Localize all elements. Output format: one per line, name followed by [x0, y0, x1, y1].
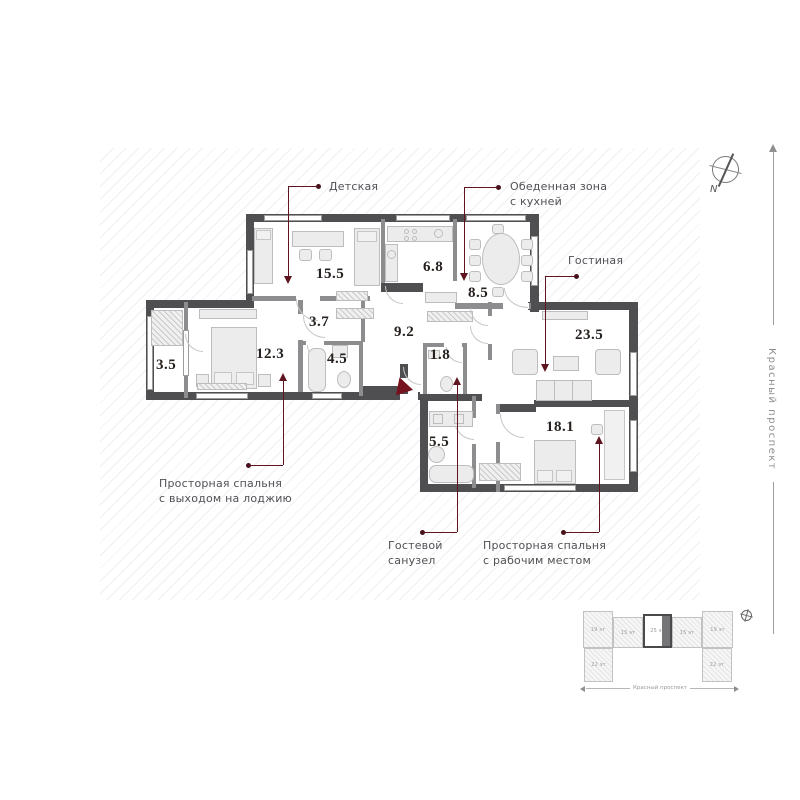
area-label-corridor: 9.2 [394, 324, 414, 341]
chair-icon [521, 271, 533, 282]
wardrobe-icon [199, 309, 257, 319]
stove-burner-icon [404, 229, 409, 234]
closet-icon [427, 311, 473, 322]
armchair-icon [512, 349, 538, 375]
callout-line [249, 465, 283, 466]
chair-icon [469, 255, 481, 266]
callout-bedroom1-label: Просторная спальня с выходом на лоджию [159, 476, 292, 506]
callout-line [464, 187, 496, 188]
callout-line [283, 380, 284, 465]
sink-icon [433, 414, 443, 424]
dresser-icon [336, 291, 368, 301]
area-label-bedroom-2: 18.1 [546, 419, 574, 436]
wall [423, 343, 427, 394]
site-street-arrow-right-icon [734, 686, 739, 692]
callout-line [545, 276, 546, 364]
callout-bedroom1-line1: Просторная спальня [159, 476, 292, 491]
area-label-nursery: 15.5 [316, 266, 344, 283]
area-label-bedroom-1: 12.3 [256, 346, 284, 363]
pillow-icon [357, 231, 377, 242]
callout-line [288, 186, 316, 187]
window [312, 393, 342, 399]
dining-table-icon [482, 233, 520, 285]
wall [534, 400, 629, 407]
wall [361, 300, 365, 342]
nightstand-icon [258, 374, 271, 387]
site-street-arrow-left-icon [580, 686, 585, 692]
site-block-3-strip [662, 616, 670, 646]
site-block-4: 15 эт [672, 617, 702, 648]
area-label-living: 23.5 [575, 327, 603, 344]
stove-burner-icon [412, 229, 417, 234]
street-line [773, 151, 774, 325]
wardrobe-icon [479, 463, 521, 481]
wall [146, 300, 254, 308]
callout-dot [496, 185, 501, 190]
chair-icon [492, 287, 504, 297]
site-compass-icon [740, 609, 754, 623]
callout-arrow-icon [279, 373, 287, 381]
callout-dot [316, 184, 321, 189]
sofa-cushion-icon [572, 381, 574, 400]
callout-arrow-icon [453, 377, 461, 385]
armchair-icon [595, 349, 621, 375]
callout-line [288, 186, 289, 276]
area-label-loggia: 3.5 [156, 357, 176, 374]
sofa-icon [536, 380, 592, 401]
site-block-3-highlighted: 25 эт [643, 614, 672, 648]
callout-arrow-icon [541, 364, 549, 372]
site-block-6: 22 эт [584, 648, 613, 682]
area-label-kitchen: 6.8 [423, 259, 443, 276]
window [630, 352, 637, 396]
callout-line [464, 187, 465, 273]
chair-icon [469, 239, 481, 250]
toilet-icon [337, 371, 351, 388]
wall [528, 302, 632, 310]
site-block-1: 19 эт [583, 611, 613, 648]
site-street-label: Красный проспект [632, 685, 688, 691]
sink-icon [434, 229, 443, 238]
site-block-5: 19 эт [702, 611, 733, 648]
pillow-icon [256, 230, 271, 240]
coffee-table-icon [553, 356, 579, 371]
pillow-icon [537, 470, 553, 482]
chair-icon [299, 249, 312, 261]
callout-dot [574, 274, 579, 279]
loggia-wardrobe-icon [151, 310, 183, 346]
chair-icon [492, 224, 504, 234]
area-label-hall: 3.7 [309, 314, 329, 331]
sink-icon [454, 414, 464, 424]
callout-arrow-icon [460, 273, 468, 281]
callout-line [564, 532, 599, 533]
window [247, 250, 253, 294]
wall [420, 394, 428, 488]
wall [359, 341, 363, 396]
callout-line [599, 443, 600, 532]
site-block-7: 22 эт [702, 648, 732, 682]
street-label-vertical: Красный проспект [766, 348, 777, 470]
window [264, 215, 322, 221]
desk-icon [292, 231, 344, 247]
stove-burner-icon [404, 236, 409, 241]
wall [488, 344, 492, 360]
street-line [773, 482, 774, 634]
wall [453, 219, 457, 281]
window [630, 420, 637, 472]
callout-bedroom2-label: Просторная спальня с рабочим местом [483, 538, 606, 568]
callout-guest-line2: санузел [388, 553, 443, 568]
wall [463, 343, 467, 394]
tv-console-icon [542, 311, 588, 320]
window [466, 215, 526, 221]
window [396, 215, 450, 221]
chair-icon [521, 239, 533, 250]
area-label-guest-bath: 5.5 [429, 434, 449, 451]
work-desk-icon [604, 410, 625, 480]
bathtub-icon [429, 465, 474, 483]
site-block-2: 15 эт [613, 617, 643, 648]
wall [488, 302, 492, 316]
chair-icon [319, 249, 332, 261]
site-street-line [586, 688, 630, 689]
kitchen-counter-icon [387, 226, 453, 242]
chair-icon [469, 271, 481, 282]
callout-bedroom1-line2: с выходом на лоджию [159, 491, 292, 506]
callout-nursery-label: Детская [329, 179, 378, 194]
callout-arrow-icon [284, 276, 292, 284]
callout-bedroom2-line1: Просторная спальня [483, 538, 606, 553]
callout-arrow-icon [595, 436, 603, 444]
callout-living-label: Гостиная [568, 253, 623, 268]
wall [496, 404, 536, 412]
callout-dining-label: Обеденная зона с кухней [510, 179, 607, 209]
callout-bedroom2-line2: с рабочим местом [483, 553, 606, 568]
compass-north-label: N [710, 184, 717, 195]
washing-machine-icon [425, 292, 457, 303]
radiator-icon [197, 383, 247, 390]
window [504, 485, 576, 491]
sink-icon [387, 250, 396, 259]
callout-guest-label: Гостевой санузел [388, 538, 443, 568]
chair-icon [521, 255, 533, 266]
callout-line [423, 532, 457, 533]
stove-burner-icon [412, 236, 417, 241]
pillow-icon [556, 470, 572, 482]
area-label-bathroom: 4.5 [327, 351, 347, 368]
area-label-wc: 1.8 [430, 347, 450, 364]
floorplan-page: 15.5 6.8 8.5 3.7 9.2 4.5 12.3 3.5 1.8 23… [0, 0, 800, 800]
chair-icon [591, 424, 603, 435]
site-street-line [690, 688, 734, 689]
callout-guest-line1: Гостевой [388, 538, 443, 553]
callout-line [457, 384, 458, 532]
area-label-dining: 8.5 [468, 285, 488, 302]
closet-icon [336, 308, 374, 319]
window [196, 393, 248, 399]
sofa-cushion-icon [554, 381, 556, 400]
callout-dining-line1: Обеденная зона [510, 179, 607, 194]
callout-line [545, 276, 574, 277]
bathtub-icon [308, 348, 326, 392]
toilet-icon [440, 376, 453, 392]
callout-dining-line2: с кухней [510, 194, 607, 209]
